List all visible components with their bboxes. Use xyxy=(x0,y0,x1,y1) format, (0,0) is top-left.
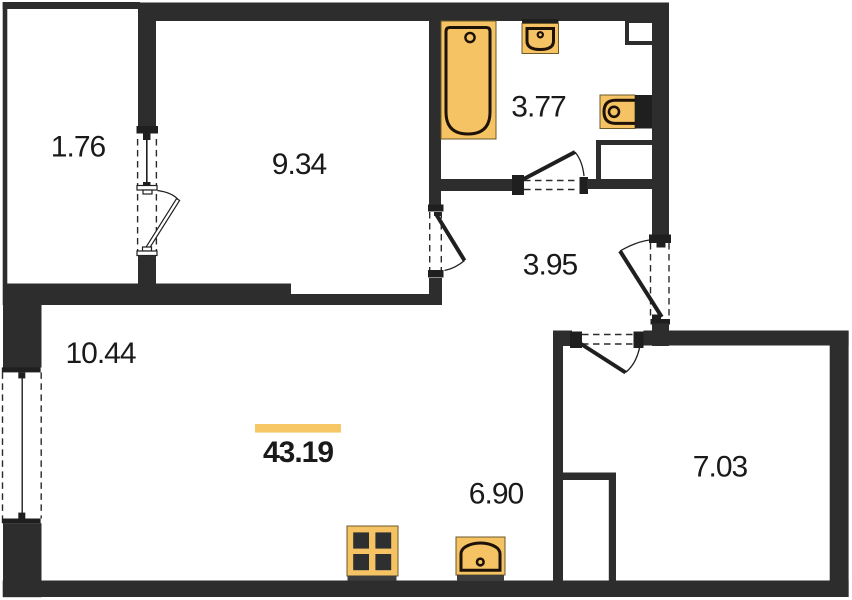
svg-text:3.77: 3.77 xyxy=(511,91,566,124)
svg-text:43.19: 43.19 xyxy=(263,436,333,469)
svg-text:9.34: 9.34 xyxy=(272,148,327,181)
svg-text:1.76: 1.76 xyxy=(51,131,106,164)
svg-text:7.03: 7.03 xyxy=(693,451,748,484)
svg-text:6.90: 6.90 xyxy=(469,478,524,511)
svg-text:10.44: 10.44 xyxy=(65,337,135,370)
svg-text:3.95: 3.95 xyxy=(523,249,578,282)
